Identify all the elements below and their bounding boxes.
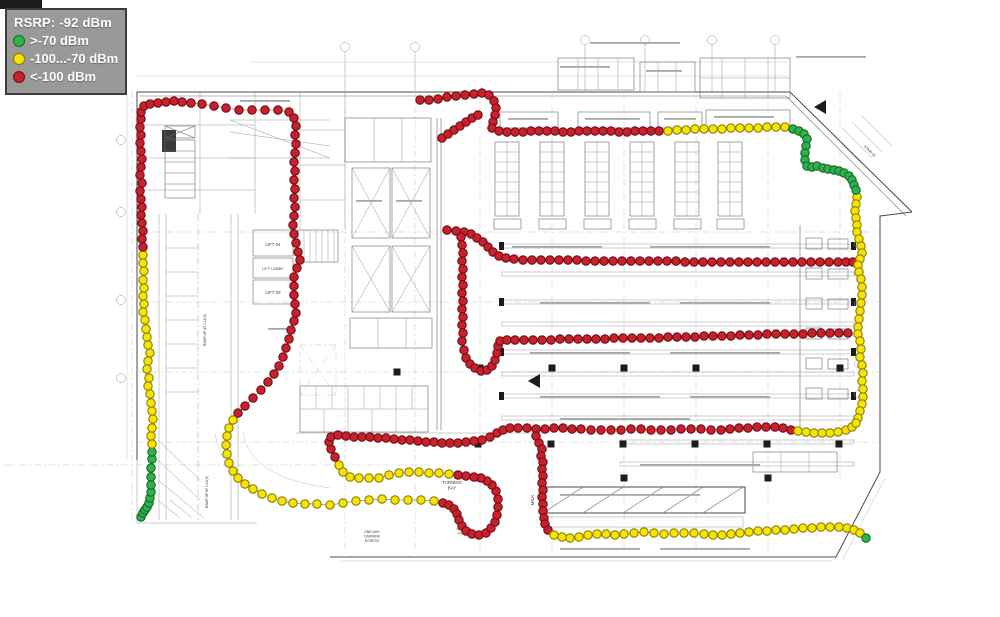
legend-title: RSRP: -92 dBm bbox=[14, 15, 119, 30]
legend-row-good: >-70 dBm bbox=[13, 33, 119, 48]
legend-row-bad: <-100 dBm bbox=[13, 69, 119, 84]
yellow-dot-icon bbox=[13, 53, 25, 65]
legend-row-mid: -100...-70 dBm bbox=[13, 51, 119, 66]
svg-text:LIFT LOBBY: LIFT LOBBY bbox=[262, 267, 284, 271]
svg-text:MILK: MILK bbox=[530, 494, 535, 506]
legend-label-bad: <-100 dBm bbox=[30, 69, 96, 84]
measurement-dots bbox=[136, 89, 870, 542]
legend-label-good: >-70 dBm bbox=[30, 33, 89, 48]
svg-text:LIFT 04: LIFT 04 bbox=[265, 242, 281, 247]
legend-label-mid: -100...-70 dBm bbox=[30, 51, 118, 66]
svg-text:LIFT 03: LIFT 03 bbox=[265, 290, 281, 295]
floorplan-canvas[interactable]: LIFT 04LIFT LOBBYLIFT 03TURNINGBAYMILKGA… bbox=[0, 0, 1000, 617]
floorplan-svg: LIFT 04LIFT LOBBYLIFT 03TURNINGBAYMILKGA… bbox=[0, 0, 1000, 617]
red-dot-icon bbox=[13, 71, 25, 83]
rsrp-legend: RSRP: -92 dBm >-70 dBm -100...-70 dBm <-… bbox=[5, 8, 127, 95]
svg-text:TURNINGBAY: TURNINGBAY bbox=[442, 480, 463, 491]
svg-text:ONE-WAYCARPARKEGRESS: ONE-WAYCARPARKEGRESS bbox=[364, 530, 381, 543]
svg-text:RAMP UP AT 1:12(S): RAMP UP AT 1:12(S) bbox=[205, 476, 209, 508]
green-dot-icon bbox=[13, 35, 25, 47]
svg-text:RAMP UP AT 1:12(S): RAMP UP AT 1:12(S) bbox=[203, 314, 207, 346]
